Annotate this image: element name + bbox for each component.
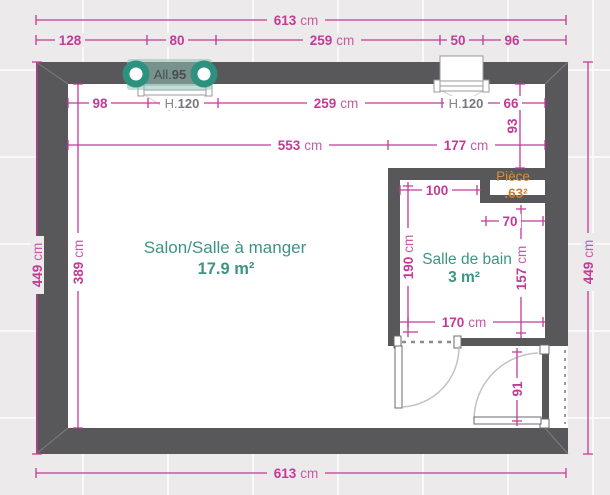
dim-bath-outer-width: 177cm (437, 138, 495, 153)
dim-inner-66: 66 (500, 96, 522, 111)
entry-door-frame-side (542, 354, 549, 419)
svg-text:H.120: H.120 (449, 96, 484, 111)
dim-right-total: 449cm (581, 233, 596, 291)
svg-text:66: 66 (503, 96, 519, 111)
svg-text:80: 80 (169, 33, 184, 48)
svg-text:613cm: 613cm (274, 466, 319, 481)
dim-top-seg-259: 259cm (303, 33, 361, 48)
salon-name: Salon/Salle à manger (144, 238, 307, 257)
dim-top-seg-128: 128 (55, 33, 85, 48)
svg-text:157cm: 157cm (514, 246, 529, 291)
svg-text:190cm: 190cm (401, 235, 416, 280)
svg-text:449cm: 449cm (30, 243, 45, 288)
window-handle-left[interactable] (126, 64, 146, 84)
salon-area: 17.9 m² (198, 260, 255, 278)
dim-top-seg-80: 80 (166, 33, 188, 48)
svg-text:98: 98 (92, 96, 108, 111)
svg-text:449cm: 449cm (581, 240, 596, 285)
dim-bath-right-height: 157cm (514, 239, 529, 297)
svg-text:50: 50 (450, 33, 465, 48)
svg-text:177cm: 177cm (444, 138, 489, 153)
svg-text:613cm: 613cm (274, 13, 319, 28)
svg-text:H.120: H.120 (165, 96, 200, 111)
dim-entry-door: 91 (510, 378, 525, 400)
floor-plan-canvas: All.95 613cm 128 80 259cm 50 96 98 H.120… (0, 0, 610, 495)
svg-text:553cm: 553cm (278, 138, 323, 153)
window-sill-cap (483, 80, 489, 92)
svg-text:96: 96 (504, 33, 520, 48)
svg-text:259cm: 259cm (314, 96, 359, 111)
dim-bath-bottom: 170cm (435, 315, 493, 330)
label-window-height-right: H.120 (444, 96, 488, 111)
piece-name: Pièce (496, 169, 530, 184)
svg-text:128: 128 (59, 33, 82, 48)
dim-right-inset: 93 (505, 115, 520, 137)
piece-area: .63² (504, 186, 528, 201)
bathroom-door-leaf[interactable] (395, 346, 402, 408)
bathroom-name: Salle de bain (422, 251, 512, 268)
window-handle-right[interactable] (194, 64, 214, 84)
entry-door-leaf[interactable] (474, 417, 541, 424)
dim-top-seg-96: 96 (501, 33, 523, 48)
svg-text:170cm: 170cm (442, 315, 487, 330)
door-jamb (454, 336, 461, 348)
dim-bottom-total: 613cm (267, 466, 325, 481)
dim-top-total: 613cm (267, 13, 325, 28)
dim-bath-top: 100 (422, 183, 452, 198)
dim-inner-98: 98 (89, 96, 111, 111)
svg-text:93: 93 (505, 118, 520, 134)
dim-inner-259: 259cm (307, 96, 365, 111)
svg-text:259cm: 259cm (310, 33, 355, 48)
window-recess (440, 56, 483, 84)
door-jamb (540, 345, 549, 354)
svg-text:91: 91 (510, 381, 525, 397)
dim-left-total: 449cm (30, 236, 45, 294)
svg-text:100: 100 (426, 183, 449, 198)
label-window-height-left: H.120 (160, 96, 204, 111)
dim-salon-width: 553cm (271, 138, 329, 153)
dim-niche-width: 70 (499, 214, 521, 229)
dim-bath-left-height: 190cm (401, 228, 416, 286)
bathroom-area: 3 m² (448, 269, 480, 286)
dim-salon-height: 389cm (71, 233, 86, 291)
floor-plan: All.95 613cm 128 80 259cm 50 96 98 H.120… (0, 0, 610, 495)
svg-text:70: 70 (502, 214, 517, 229)
window-label: All.95 (154, 67, 187, 82)
svg-text:389cm: 389cm (71, 240, 86, 285)
window-sill-cap (434, 80, 440, 92)
dim-top-seg-50: 50 (447, 33, 469, 48)
